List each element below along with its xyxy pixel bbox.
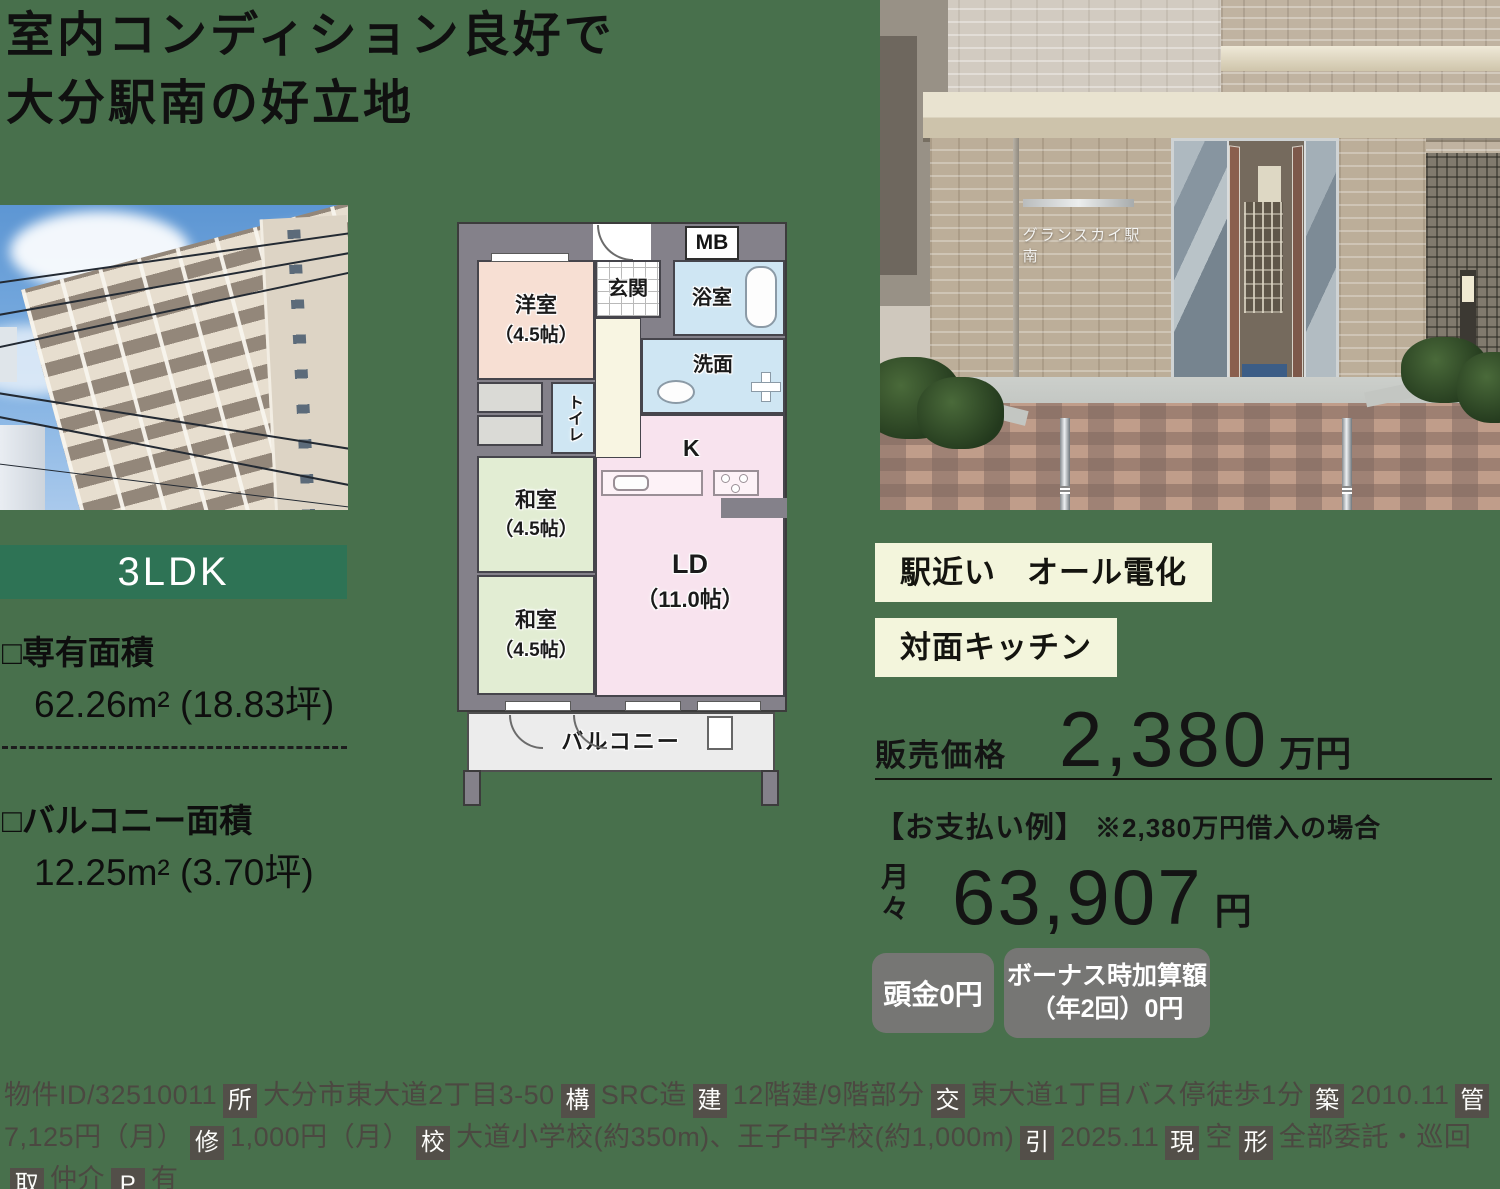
floor-plan: MB 洋室 （4.5帖） トイレ 和室 （4.5帖） 和室 （4.5帖） 玄関 … (455, 212, 790, 812)
open-door (1292, 145, 1303, 391)
monthly-amount: 63,907 (952, 852, 1203, 943)
title-line-1: 室内コンディション良好で (6, 2, 615, 70)
monthly-label: 月々 (876, 862, 910, 926)
tower-windows (287, 230, 316, 510)
layout-type-badge: 3LDK (0, 545, 347, 599)
bollard (1342, 418, 1352, 510)
balcony-area-label: □バルコニー面積 (2, 794, 252, 842)
stairwell-shadow (880, 36, 917, 276)
wall-stub (721, 498, 787, 518)
japanese-room-2: 和室 （4.5帖） (477, 575, 595, 695)
bollard (1060, 418, 1070, 510)
building-name-sign: グランスカイ駅南 (1023, 224, 1147, 266)
detail-tag: 管 (1455, 1084, 1489, 1118)
detail-text: 大道小学校(約350m)、王子中学校(約1,000m) (456, 1122, 1014, 1152)
entrance-canopy (923, 92, 1500, 138)
monthly-unit: 円 (1215, 881, 1252, 935)
tag-counter-kitchen: 対面キッチン (875, 618, 1117, 677)
window (491, 253, 569, 262)
burner-icon (721, 474, 730, 483)
detail-text: 12階建/9階部分 (733, 1080, 925, 1110)
kitchen-label: K (683, 434, 700, 463)
detail-tag: 修 (190, 1126, 224, 1160)
dashed-divider (2, 746, 347, 749)
price-label: 販売価格 (875, 730, 1007, 775)
hallway (595, 318, 641, 458)
drain-pipe (1013, 138, 1019, 393)
glass-panel (1304, 141, 1336, 395)
detail-text: 全部委託・巡回 (1279, 1122, 1472, 1152)
bonus-payment-badge: ボーナス時加算額 （年2回）0円 (1004, 948, 1210, 1038)
kitchen-sink-icon (613, 475, 649, 491)
open-door (1229, 145, 1240, 391)
sink-icon (657, 380, 695, 404)
exclusive-area-label: □専有面積 (2, 626, 154, 674)
entrance-hall: 玄関 (595, 260, 661, 318)
property-details: 物件ID/32510011所大分市東大道2丁目3-50構SRC造建12階建/9階… (4, 1076, 1498, 1189)
detail-tag: 建 (693, 1084, 727, 1118)
balcony-equipment (707, 716, 733, 750)
detail-text: 有 (151, 1164, 179, 1189)
detail-text: 2025.11 (1060, 1122, 1159, 1152)
detail-text: 大分市東大道2丁目3-50 (263, 1080, 555, 1110)
detail-text: 7,125円（月） (4, 1122, 184, 1152)
tag-all-electric: オール電化 (1002, 543, 1212, 602)
tag-station-close: 駅近い (875, 543, 1021, 602)
bonus-badge-line2: （年2回）0円 (1031, 993, 1184, 1026)
brick-wall-left (930, 138, 1172, 398)
upper-band (1221, 46, 1500, 72)
payment-note: ※2,380万円借入の場合 (1095, 813, 1381, 843)
shrub (917, 377, 1004, 448)
glass-entrance (1171, 138, 1338, 398)
monthly-payment-row: 月々 63,907 円 (876, 852, 1496, 936)
toilet-room: トイレ (551, 382, 595, 454)
bathtub-icon (745, 266, 777, 328)
washer-pan-icon (751, 372, 781, 402)
divider-line (875, 778, 1492, 780)
price-row: 販売価格 2,380 万円 (875, 694, 1495, 780)
detail-tag: 形 (1239, 1126, 1273, 1160)
detail-tag: 取 (10, 1168, 44, 1189)
detail-tag: P (111, 1168, 145, 1189)
window (697, 701, 761, 711)
detail-text: 仲介 (50, 1164, 105, 1189)
closet (477, 382, 543, 413)
burner-icon (739, 474, 748, 483)
bonus-badge-line1: ボーナス時加算額 (1007, 960, 1207, 993)
living-dining-label: LD （11.0帖） (605, 548, 775, 614)
meter-box: MB (685, 226, 739, 260)
detail-tag: 築 (1310, 1084, 1344, 1118)
title-line-2: 大分駅南の好立地 (6, 70, 615, 138)
price-unit: 万円 (1279, 725, 1351, 777)
down-payment-badge: 頭金0円 (872, 953, 994, 1033)
lattice-screen (1244, 202, 1283, 314)
window (505, 701, 571, 711)
detail-tag: 所 (223, 1084, 257, 1118)
balcony-foot (761, 770, 779, 806)
real-estate-flyer: 室内コンディション良好で 大分駅南の好立地 3LDK □専有面積 62.26m²… (0, 0, 1500, 1189)
glass-panel (1174, 141, 1229, 395)
neighbor-building (0, 327, 17, 382)
detail-text: 空 (1205, 1122, 1233, 1152)
page-title: 室内コンディション良好で 大分駅南の好立地 (6, 2, 615, 138)
balcony-foot (463, 770, 481, 806)
detail-tag: 現 (1165, 1126, 1199, 1160)
exclusive-area-value: 62.26m² (18.83坪) (34, 674, 334, 728)
detail-text: SRC造 (601, 1080, 687, 1110)
sign-bar (1023, 199, 1135, 207)
detail-tag: 交 (931, 1084, 965, 1118)
balcony-area-value: 12.25m² (3.70坪) (34, 842, 314, 896)
burner-icon (731, 484, 740, 493)
detail-text: 1,000円（月） (230, 1122, 410, 1152)
property-id: 物件ID/32510011 (4, 1080, 217, 1110)
building-exterior-photo (0, 205, 348, 510)
price-amount: 2,380 (1059, 694, 1269, 785)
western-room: 洋室 （4.5帖） (477, 260, 595, 380)
japanese-room-1: 和室 （4.5帖） (477, 456, 595, 573)
payment-heading: 【お支払い例】※2,380万円借入の場合 (875, 804, 1381, 846)
detail-tag: 構 (561, 1084, 595, 1118)
closet (477, 415, 543, 446)
entrance-photo: グランスカイ駅南 (880, 0, 1500, 510)
window (625, 701, 681, 711)
detail-tag: 校 (416, 1126, 450, 1160)
payment-heading-label: 【お支払い例】 (875, 812, 1085, 844)
detail-text: 東大道1丁目バス停徒歩1分 (971, 1080, 1305, 1110)
detail-tag: 引 (1020, 1126, 1054, 1160)
detail-text: 2010.11 (1350, 1080, 1449, 1110)
